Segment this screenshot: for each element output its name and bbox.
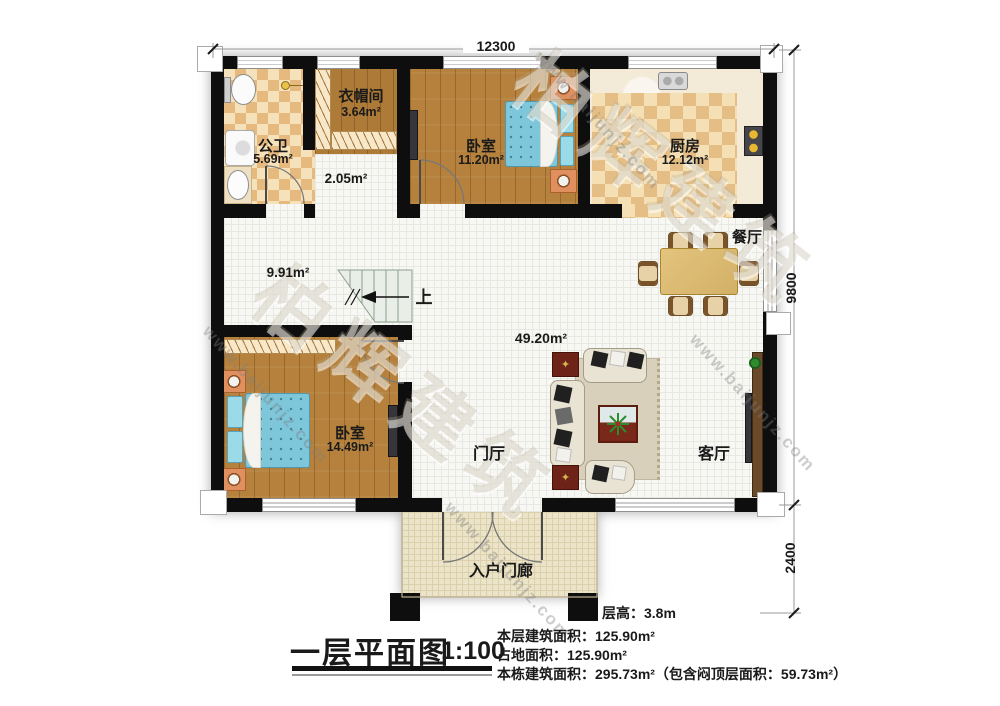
dim-top-12300: 12300 [463,39,529,53]
floor-gap-bedroom1-door [420,204,465,218]
label-bathroom-area: 5.69m² [233,153,313,166]
label-cloakroom-name: 衣帽间 [321,89,401,104]
wall-corridor-bedroom1 [397,56,410,204]
label-living-open-area: 49.20m² [501,331,581,345]
stat-total-area: 本栋建筑面积：295.73m²（包含闷顶层面积：59.73m²） [497,664,847,684]
title-underline-thin [292,674,492,676]
cushion [611,465,627,481]
dining-chair [638,261,658,286]
extension-box [760,45,783,73]
floor-corridor [315,154,397,218]
title-underline-thick [292,666,492,671]
label-cloakroom-area: 3.64m² [321,106,401,119]
plan-scale: 1:100 [441,637,505,666]
window-bathroom [237,56,283,69]
wall-lamp-arm [290,85,303,86]
dining-chair [668,296,693,316]
pillow-bedroom2-b [227,431,243,463]
pillow-bedroom2-a [227,396,243,428]
plant-console [749,357,761,369]
cushion [555,407,574,426]
label-dining-name: 餐厅 [707,230,787,245]
extension-box [197,46,223,72]
bed-sheet-bedroom2 [243,393,261,468]
coffee-table [598,405,638,443]
extension-box [200,490,227,515]
side-table-top: ✦ [552,352,579,377]
toilet-icon [231,74,256,105]
dim-right-2400: 2400 [783,530,797,586]
wall-interior [304,204,315,218]
label-bedroom2-area: 14.49m² [310,441,390,454]
cushion [627,352,645,370]
wall-lamp-icon [281,81,290,90]
label-porch-name: 入户门廊 [461,564,541,580]
cushion [609,350,626,367]
label-bedroom2-name: 卧室 [310,426,390,441]
wall-exterior-bottom [356,498,442,512]
label-hall-area: 9.91m² [248,266,328,280]
window-living [615,498,735,512]
stat-floor-height: 层高：3.8m [602,603,676,623]
extension-box [757,492,785,517]
cloakroom-rack-bottom [331,131,397,150]
wall-interior [397,204,420,218]
window-bedroom2 [262,498,356,512]
wall-interior [465,204,622,218]
window-kitchen [628,56,717,69]
floor-gap-bathroom-door [266,204,304,218]
label-bedroom1-name: 卧室 [441,139,521,154]
dining-chair [703,296,728,316]
stat-land-area: 占地面积：125.90m² [497,645,627,665]
dim-right-9800: 9800 [784,260,798,316]
porch-column-right [568,593,598,621]
wall-exterior-bottom [542,498,615,512]
cushion [591,351,609,369]
wall-interior [211,204,266,218]
label-living-name: 客厅 [674,447,754,463]
label-corridor-area: 2.05m² [306,172,386,186]
label-foyer-name: 门厅 [449,447,529,463]
nightstand-bedroom1-bottom [550,169,577,193]
floor-plan-canvas: ✦ ✦ [0,0,1000,706]
porch-column-left [390,593,420,621]
wall-bathroom-cloakroom [303,69,315,150]
toilet-tank [224,77,231,103]
kitchen-sink-icon [658,72,688,90]
wall-exterior-left [211,56,224,512]
sink-icon [227,170,249,200]
stat-floor-area: 本层建筑面积：125.90m² [497,626,655,646]
cushion [592,465,610,483]
label-kitchen-name: 厨房 [645,139,725,154]
cushion [554,385,573,404]
nightstand-bedroom2-bottom [222,468,246,491]
label-bedroom1-area: 11.20m² [441,154,521,167]
stove-icon [744,126,763,156]
window-cloakroom [317,56,360,69]
label-stairs-up: 上 [404,289,444,306]
label-kitchen-area: 12.12m² [645,154,725,167]
